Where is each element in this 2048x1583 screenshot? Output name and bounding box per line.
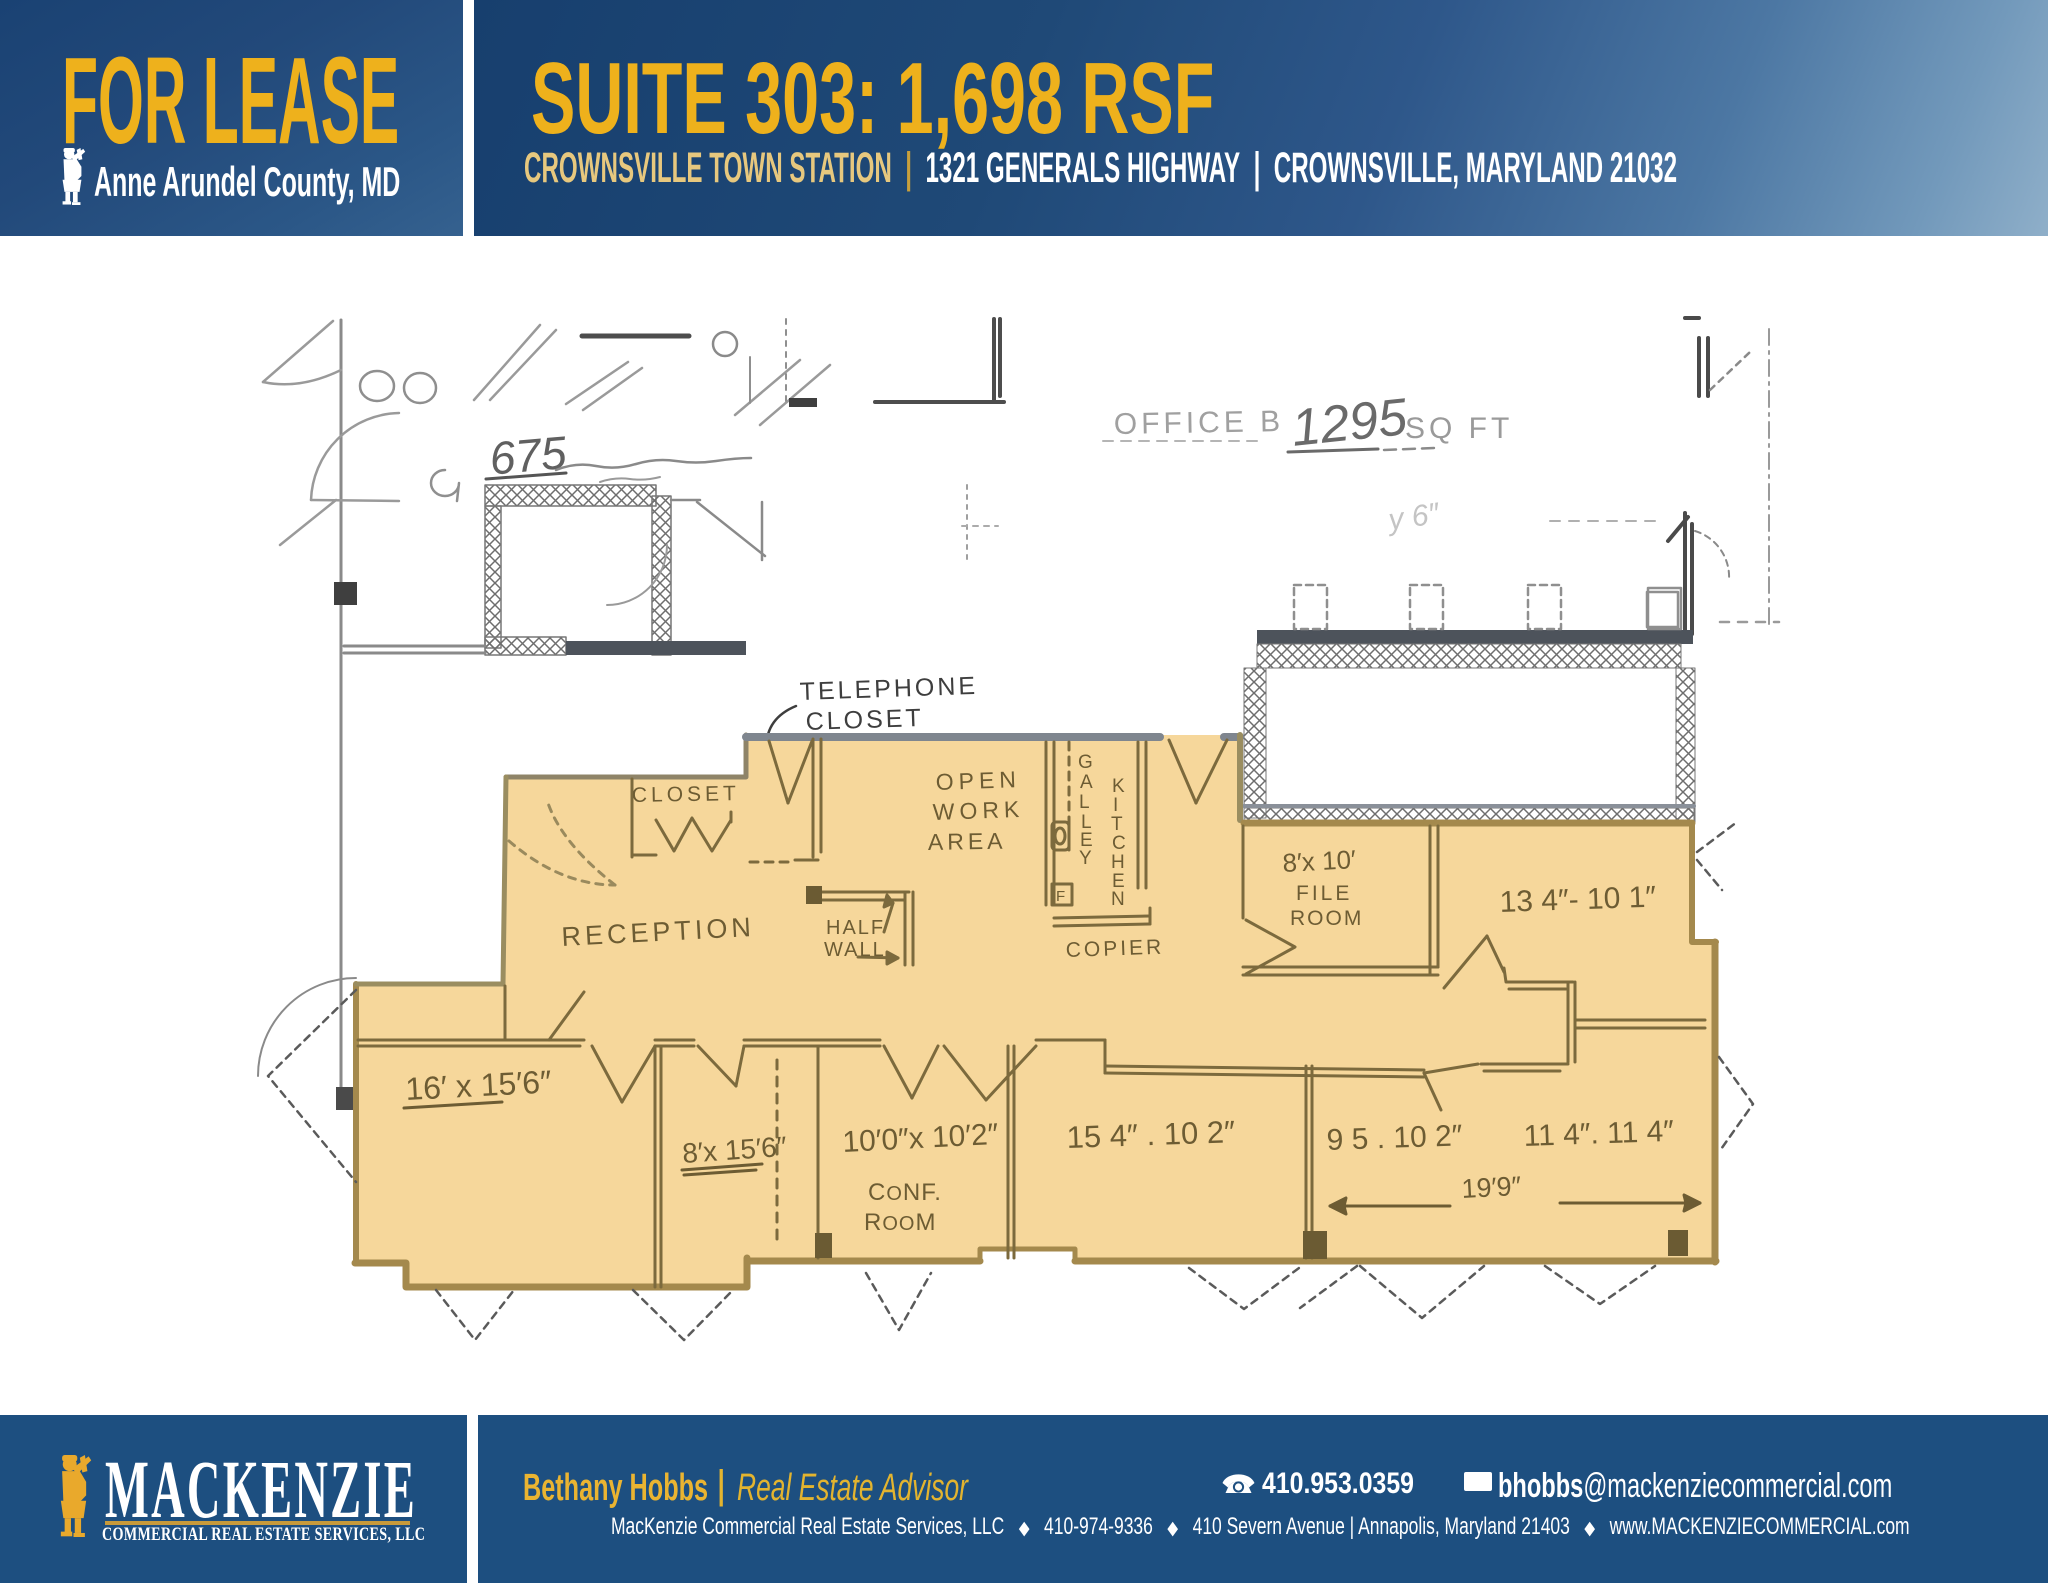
svg-text:1295: 1295 — [1289, 388, 1411, 458]
svg-text:FILE: FILE — [1296, 882, 1352, 905]
svg-text:ROOM: ROOM — [864, 1209, 936, 1236]
svg-text:OPEN: OPEN — [935, 766, 1021, 795]
svg-text:ROOM: ROOM — [1290, 907, 1363, 930]
svg-text:K: K — [1112, 776, 1125, 797]
svg-text:TELEPHONE: TELEPHONE — [799, 672, 978, 706]
svg-text:HALF: HALF — [826, 917, 885, 939]
svg-text:CLOSET: CLOSET — [632, 782, 740, 807]
svg-text:OFFICE B: OFFICE B — [1114, 405, 1285, 441]
svg-text:WALL: WALL — [824, 939, 886, 961]
svg-text:19′9″: 19′9″ — [1461, 1171, 1523, 1204]
svg-text:8′x 10′: 8′x 10′ — [1282, 844, 1357, 878]
svg-text:9 5 . 10 2″: 9 5 . 10 2″ — [1326, 1119, 1463, 1157]
svg-text:F: F — [1056, 888, 1065, 905]
svg-text:y 6″: y 6″ — [1384, 497, 1442, 537]
svg-text:A: A — [1080, 772, 1093, 793]
svg-text:Y: Y — [1079, 848, 1092, 869]
svg-text:I: I — [1113, 795, 1118, 816]
svg-text:CLOSET: CLOSET — [805, 704, 924, 736]
svg-text:WORK: WORK — [932, 796, 1024, 825]
svg-text:COPIER: COPIER — [1065, 936, 1164, 962]
svg-text:C: C — [1112, 833, 1126, 854]
svg-text:T: T — [1111, 814, 1123, 835]
svg-text:CONF.: CONF. — [868, 1179, 942, 1206]
svg-text:13 4″- 10 1″: 13 4″- 10 1″ — [1499, 881, 1657, 919]
svg-text:15 4″ . 10 2″: 15 4″ . 10 2″ — [1066, 1114, 1236, 1155]
svg-text:G: G — [1078, 752, 1093, 773]
svg-text:SQ FT: SQ FT — [1405, 412, 1513, 445]
svg-text:16′ x 15′6″: 16′ x 15′6″ — [404, 1063, 552, 1107]
svg-text:H: H — [1111, 852, 1125, 873]
svg-text:L: L — [1079, 792, 1090, 813]
svg-text:N: N — [1111, 889, 1125, 910]
svg-text:11 4″. 11 4″: 11 4″. 11 4″ — [1523, 1115, 1675, 1153]
svg-text:AREA: AREA — [928, 828, 1007, 855]
